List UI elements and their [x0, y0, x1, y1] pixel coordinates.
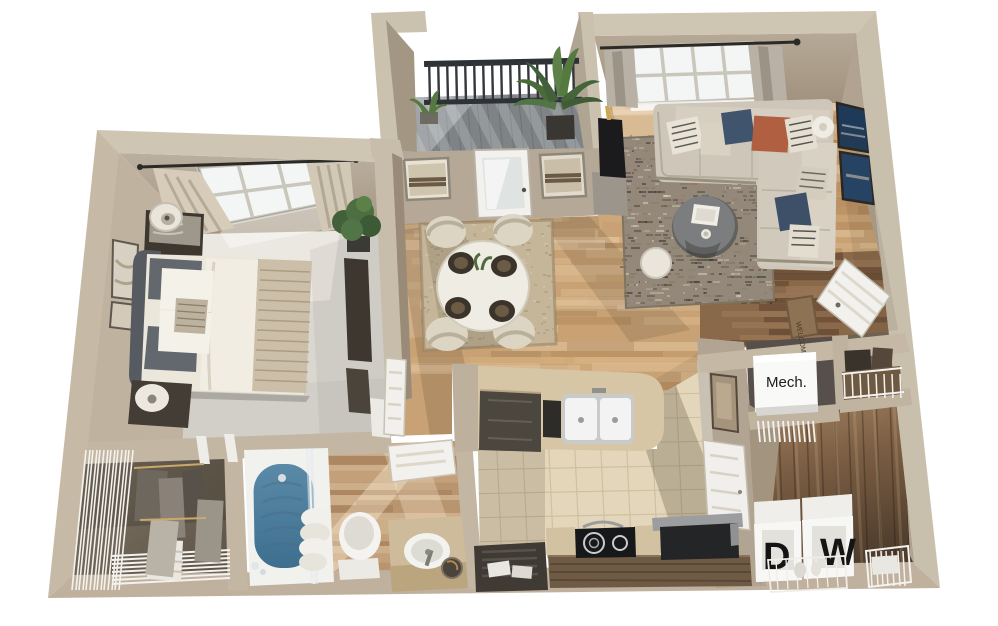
svg-text:Mech.: Mech.: [766, 374, 807, 391]
svg-text:W: W: [820, 532, 856, 574]
